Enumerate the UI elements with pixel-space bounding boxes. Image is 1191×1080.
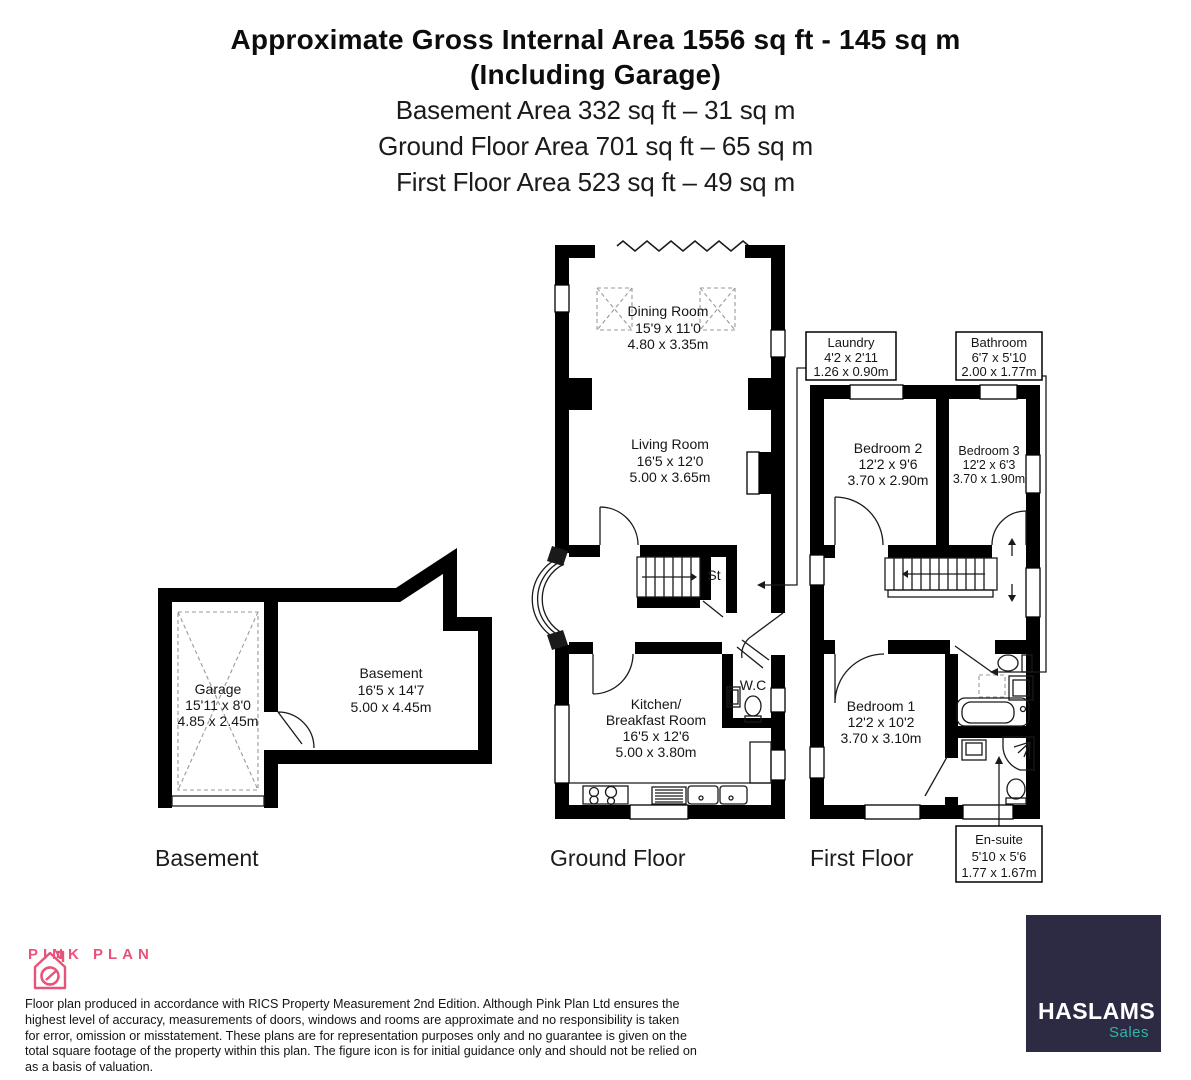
laundry-size-metric: 1.26 x 0.90m xyxy=(813,364,888,379)
garage-size-imperial: 15'11 x 8'0 xyxy=(185,697,251,713)
agency-logo: HASLAMS Sales xyxy=(1026,915,1161,1052)
wc-label: W.C xyxy=(740,677,766,693)
basement-caption: Basement xyxy=(155,845,259,871)
kitchen-name-line1: Kitchen/ xyxy=(631,696,682,712)
ground-floor-plan: Dining Room 15'9 x 11'0 4.80 x 3.35m Liv… xyxy=(532,241,785,819)
ground-floor-caption: Ground Floor xyxy=(550,845,686,871)
pink-plan-brand: PINK PLAN xyxy=(28,946,154,963)
kitchen-size-imperial: 16'5 x 12'6 xyxy=(623,728,690,744)
bedroom2-size-imperial: 12'2 x 9'6 xyxy=(858,456,917,472)
floorplan-page: Garage 15'11 x 8'0 4.85 x 2.45m Basement… xyxy=(0,0,1191,1080)
laundry-size-imperial: 4'2 x 2'11 xyxy=(824,350,878,365)
title-line2: (Including Garage) xyxy=(0,57,1191,92)
bathroom-fittings xyxy=(957,655,1033,726)
living-size-metric: 5.00 x 3.65m xyxy=(630,469,711,485)
header: Approximate Gross Internal Area 1556 sq … xyxy=(0,22,1191,200)
basement-size-imperial: 16'5 x 14'7 xyxy=(358,682,425,698)
basement-door-gap xyxy=(263,712,279,750)
dining-size-metric: 4.80 x 3.35m xyxy=(628,336,709,352)
bow-window-icon xyxy=(532,556,564,642)
agency-division: Sales xyxy=(1038,1024,1149,1042)
bedroom3-size-metric: 3.70 x 1.90m xyxy=(953,472,1025,486)
basement-room-name: Basement xyxy=(359,665,422,681)
dining-room-name: Dining Room xyxy=(628,303,709,319)
basement-plan: Garage 15'11 x 8'0 4.85 x 2.45m Basement… xyxy=(165,561,485,810)
garage-size-metric: 4.85 x 2.45m xyxy=(178,713,259,729)
pink-plan-house-icon xyxy=(28,946,72,992)
first-floor-caption: First Floor xyxy=(810,845,914,871)
toilet-icon xyxy=(745,696,761,716)
laundry-name: Laundry xyxy=(828,335,875,350)
ensuite-name: En-suite xyxy=(975,832,1023,847)
bedroom2-name: Bedroom 2 xyxy=(854,440,923,456)
zigzag-break-line xyxy=(617,241,749,251)
ensuite-size-imperial: 5'10 x 5'6 xyxy=(972,849,1027,864)
first-floor-plan: Laundry 4'2 x 2'11 1.26 x 0.90m Bathroom… xyxy=(757,332,1046,882)
bedroom3-name: Bedroom 3 xyxy=(958,444,1019,458)
store-label: St xyxy=(707,567,720,583)
floor-captions: Basement Ground Floor First Floor xyxy=(155,845,914,871)
ground-floor-area-line: Ground Floor Area 701 sq ft – 65 sq m xyxy=(0,128,1191,164)
shower-tray-icon xyxy=(979,675,1005,697)
bathroom-name: Bathroom xyxy=(971,335,1027,350)
bedroom1-size-imperial: 12'2 x 10'2 xyxy=(848,714,915,730)
disclaimer-text: Floor plan produced in accordance with R… xyxy=(25,997,697,1076)
garage-name: Garage xyxy=(195,681,242,697)
basement-area-line: Basement Area 332 sq ft – 31 sq m xyxy=(0,92,1191,128)
basement-room-outline xyxy=(271,561,485,757)
bedroom2-size-metric: 3.70 x 2.90m xyxy=(848,472,929,488)
first-floor-area-line: First Floor Area 523 sq ft – 49 sq m xyxy=(0,164,1191,200)
toilet-icon xyxy=(1007,779,1025,799)
kitchen-name-line2: Breakfast Room xyxy=(606,712,706,728)
basement-size-metric: 5.00 x 4.45m xyxy=(351,699,432,715)
agency-name: HASLAMS xyxy=(1038,999,1149,1024)
staircase-up-icon xyxy=(637,557,700,597)
dining-size-imperial: 15'9 x 11'0 xyxy=(635,320,701,336)
sink-icon xyxy=(688,786,718,804)
kitchen-size-metric: 5.00 x 3.80m xyxy=(616,744,697,760)
ensuite-fittings xyxy=(962,737,1034,804)
living-room-name: Living Room xyxy=(631,436,709,452)
bedroom1-size-metric: 3.70 x 3.10m xyxy=(841,730,922,746)
bedroom1-name: Bedroom 1 xyxy=(847,698,916,714)
ensuite-size-metric: 1.77 x 1.67m xyxy=(961,865,1036,880)
bedroom3-size-imperial: 12'2 x 6'3 xyxy=(963,458,1016,472)
living-size-imperial: 16'5 x 12'0 xyxy=(637,453,704,469)
title-line1: Approximate Gross Internal Area 1556 sq … xyxy=(0,22,1191,57)
bathroom-size-imperial: 6'7 x 5'10 xyxy=(972,350,1027,365)
toilet-icon xyxy=(998,655,1018,671)
sink-icon xyxy=(720,786,747,804)
bathroom-size-metric: 2.00 x 1.77m xyxy=(961,364,1036,379)
